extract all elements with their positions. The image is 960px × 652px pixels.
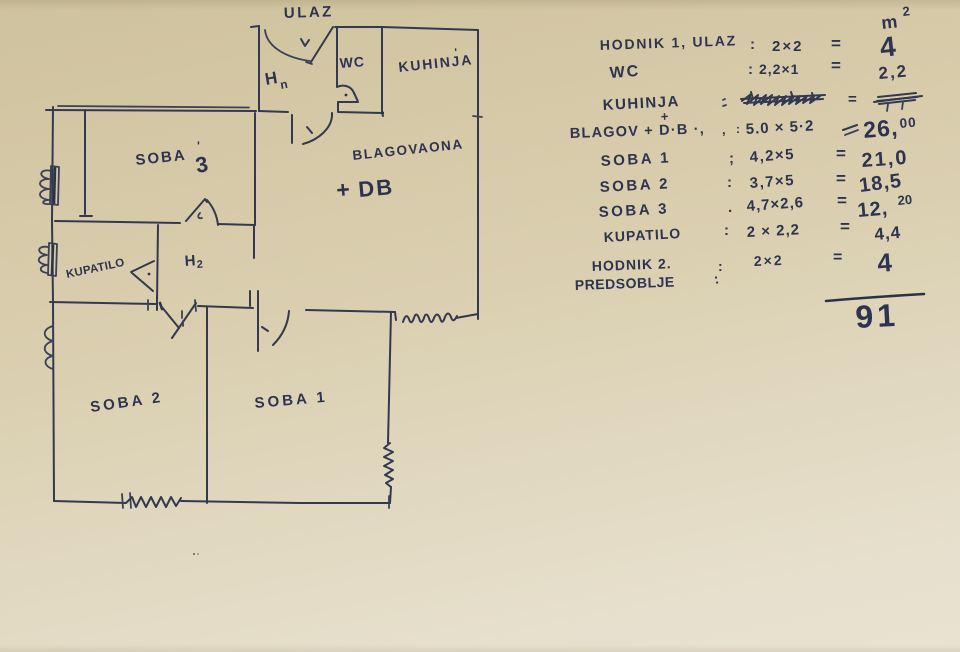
svg-text::: : (727, 174, 732, 191)
svg-text:HODNIK 1, ULAZ: HODNIK 1, ULAZ (600, 32, 738, 53)
svg-text:4: 4 (878, 30, 897, 63)
svg-text::: : (750, 36, 755, 53)
svg-text:4: 4 (876, 247, 893, 278)
svg-text:5.0 × 5·2: 5.0 × 5·2 (745, 117, 814, 138)
svg-text:2: 2 (902, 3, 911, 19)
svg-text:n: n (279, 77, 289, 92)
svg-text:2×2: 2×2 (754, 252, 784, 269)
svg-text:=: = (836, 144, 846, 163)
svg-text:SOBA 1: SOBA 1 (254, 389, 328, 412)
svg-text:ULAZ: ULAZ (284, 3, 335, 22)
svg-text:2,2×1: 2,2×1 (759, 61, 799, 77)
svg-text:;: ; (729, 150, 734, 167)
svg-text:4,7×2,6: 4,7×2,6 (746, 194, 805, 215)
svg-text:DB: DB (357, 174, 395, 202)
svg-text:KUPATILO: KUPATILO (603, 225, 681, 245)
svg-text:SOBA 2: SOBA 2 (599, 175, 670, 196)
svg-text:20: 20 (897, 192, 913, 208)
svg-text:3: 3 (194, 151, 210, 178)
svg-text:2: 2 (196, 259, 203, 271)
svg-text:KUPATILO: KUPATILO (65, 257, 126, 281)
svg-text:SOBA 3: SOBA 3 (598, 200, 669, 221)
svg-text:=: = (833, 249, 842, 266)
svg-text:': ' (197, 139, 200, 153)
svg-text:4,4: 4,4 (874, 223, 902, 244)
svg-text:=: = (836, 169, 846, 188)
svg-text:m: m (880, 11, 898, 33)
svg-text:H: H (184, 252, 196, 270)
svg-text:SOBA 1: SOBA 1 (600, 149, 671, 170)
svg-text::: : (718, 258, 723, 274)
svg-text:SOBA 2: SOBA 2 (89, 389, 164, 416)
svg-text:+: + (335, 176, 351, 203)
svg-text:HODNIK 2.: HODNIK 2. (592, 255, 672, 274)
svg-text:2×2: 2×2 (772, 38, 803, 55)
svg-text:SOBA: SOBA (135, 147, 188, 169)
svg-text:=: = (831, 56, 841, 75)
svg-text:=: = (837, 191, 847, 210)
svg-text:WC: WC (609, 63, 641, 82)
svg-text:BLAGOV + D·B ·,: BLAGOV + D·B ·, (570, 121, 706, 142)
svg-text:,: , (722, 122, 726, 137)
svg-text:KUHINJA: KUHINJA (602, 93, 680, 114)
svg-text:91: 91 (854, 297, 899, 335)
svg-text:H: H (263, 68, 278, 89)
svg-text:PREDSOBLJE: PREDSOBLJE (575, 274, 675, 293)
svg-text:26,: 26, (862, 114, 899, 143)
svg-text:00: 00 (899, 115, 917, 131)
svg-text:=: = (848, 91, 857, 108)
svg-text:KUHINJA: KUHINJA (398, 51, 474, 75)
svg-text:BLAGOVAONA: BLAGOVAONA (352, 136, 464, 163)
svg-text:4,2×5: 4,2×5 (749, 146, 796, 166)
svg-text::: : (736, 122, 740, 136)
svg-text:12,: 12, (857, 197, 890, 222)
svg-text:3,7×5: 3,7×5 (749, 172, 796, 192)
svg-text:WC: WC (339, 53, 365, 71)
svg-text:.: . (728, 199, 732, 216)
svg-text::: : (748, 61, 753, 78)
svg-text:2,2: 2,2 (878, 61, 909, 83)
svg-text:=: = (840, 217, 850, 236)
svg-text:2 × 2,2: 2 × 2,2 (746, 221, 800, 241)
svg-text::: : (724, 222, 729, 239)
svg-text:=: = (831, 34, 841, 53)
svg-text:21,0: 21,0 (861, 147, 909, 172)
